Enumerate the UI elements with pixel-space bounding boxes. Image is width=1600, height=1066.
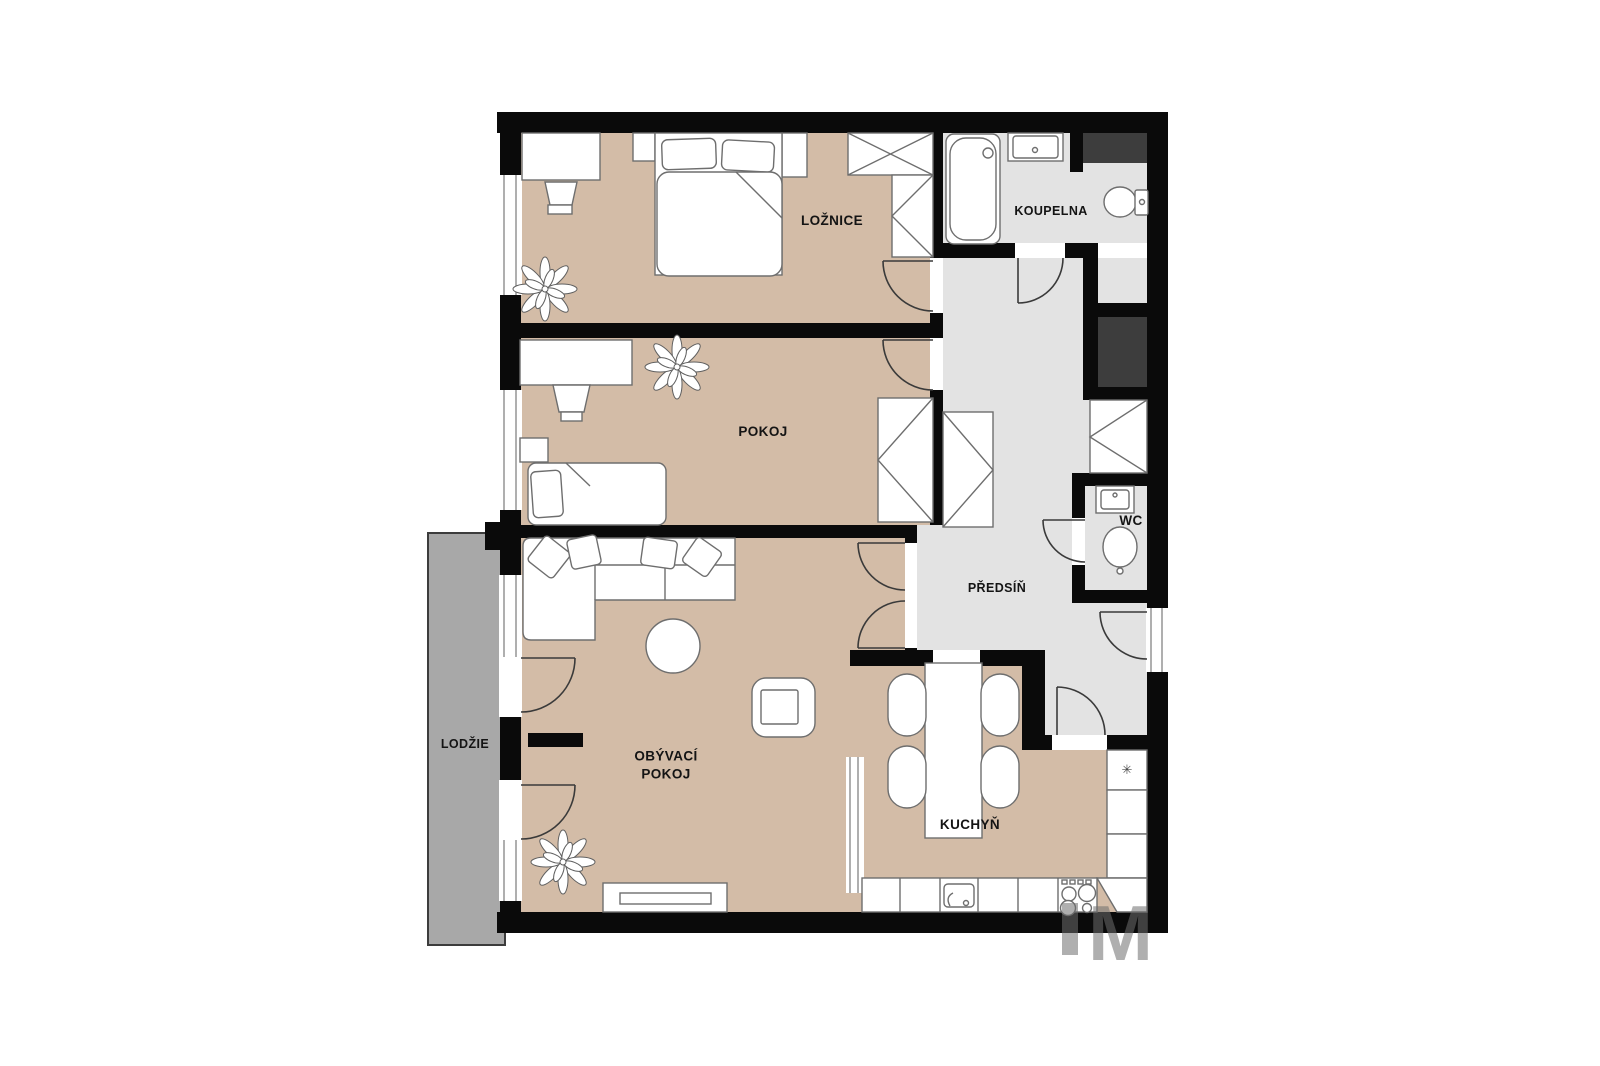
bed-pillow-left <box>661 138 716 170</box>
wc-toilet-button <box>1117 568 1123 574</box>
watermark: M <box>1088 894 1151 972</box>
bedroom-desk <box>522 133 600 180</box>
wc-toilet-bowl <box>1103 527 1137 567</box>
label-loznice: LOŽNICE <box>801 212 863 230</box>
pokoj-desk <box>520 340 632 385</box>
wall-below-shaft <box>1083 387 1147 400</box>
hallway-closet <box>1090 400 1147 473</box>
dining-chair-2 <box>888 746 926 808</box>
label-lodzie: LODŽIE <box>441 736 489 752</box>
wall-right <box>1147 133 1168 933</box>
balcony-door-1-opening <box>499 657 522 717</box>
shaft-top <box>1083 133 1147 163</box>
wall-living-stub <box>528 733 583 747</box>
label-wc: WC <box>1119 512 1142 530</box>
bathroom-sink-drain <box>1033 148 1038 153</box>
pokoj-wardrobe <box>878 398 933 522</box>
hallway-wardrobe <box>943 412 993 527</box>
wall-hallway-right <box>1083 243 1098 400</box>
bathroom-door-opening <box>1015 243 1065 258</box>
bathroom-toilet-bowl <box>1104 187 1136 217</box>
bathroom-nook-floor <box>1098 258 1147 303</box>
label-predsin: PŘEDSÍŇ <box>968 580 1026 596</box>
bathtub-drain <box>983 148 993 158</box>
sofa-pillow-3 <box>640 537 678 569</box>
dining-chair-1 <box>888 674 926 736</box>
label-koupelna: KOUPELNA <box>1014 203 1087 219</box>
wall-kitchen-hallway <box>1022 650 1045 750</box>
bedroom-plant <box>513 257 577 321</box>
wc-door-opening <box>1072 518 1085 565</box>
bedroom-window <box>499 175 522 295</box>
wall-wc-bottom <box>1072 590 1147 603</box>
pokoj-window <box>499 390 522 510</box>
living-double-door-opening <box>905 543 917 648</box>
pokoj-chair <box>553 385 590 412</box>
counter-right-cell-2 <box>1107 834 1147 878</box>
single-bed-pillow <box>530 470 563 518</box>
pokoj-chair-base <box>561 412 582 421</box>
tv-screen <box>620 893 711 904</box>
armchair-cushion <box>761 690 798 724</box>
hallway-floor-lower <box>1045 650 1147 735</box>
wc-sink-drain <box>1113 493 1117 497</box>
pokoj-door-opening <box>930 338 943 390</box>
dining-chair-4 <box>981 746 1019 808</box>
wall-bedroom-pokoj <box>500 323 943 338</box>
wall-wc-top <box>1072 473 1147 486</box>
bedroom-door-opening <box>930 258 943 313</box>
bedroom-chair <box>545 182 577 205</box>
label-pokoj: POKOJ <box>738 423 787 441</box>
living-window-2 <box>499 840 522 901</box>
label-kuchyn: KUCHYŇ <box>940 816 1000 834</box>
wall-loggia-junction <box>485 522 521 550</box>
kitchen-sink-drain <box>964 901 969 906</box>
kitchen-pass-through <box>846 757 864 893</box>
counter-right-cell-1 <box>1107 790 1147 834</box>
dining-table <box>925 663 982 838</box>
fridge-snowflake-icon: ✳ <box>1122 762 1133 778</box>
wall-pokoj-living <box>500 525 917 538</box>
dining-chair-3 <box>981 674 1019 736</box>
wall-bathroom-bottom <box>930 243 1098 258</box>
floor-plan: LOŽNICE POKOJ OBÝVACÍ POKOJ KUCHYŇ PŘEDS… <box>0 0 1600 1066</box>
bed-pillow-right <box>721 140 774 173</box>
sofa-pillow-2 <box>566 534 602 570</box>
hallway-floor-entry <box>1083 603 1147 650</box>
shaft-middle <box>1097 317 1147 387</box>
floor-plan-drawing <box>0 0 1600 1066</box>
watermark-bar <box>1062 903 1078 955</box>
balcony-door-2-opening <box>499 780 522 840</box>
bedroom-nightstand-left <box>633 133 655 161</box>
coffee-table <box>646 619 700 673</box>
bed-blanket <box>657 172 782 276</box>
living-room-plant <box>531 830 595 894</box>
bedroom-wardrobe-side <box>892 175 933 257</box>
wall-nook-bottom <box>1098 303 1147 317</box>
pokoj-plant <box>645 335 709 399</box>
label-obyvaci-pokoj: OBÝVACÍ POKOJ <box>610 747 722 782</box>
bathroom-toilet-button <box>1140 200 1145 205</box>
pokoj-nightstand <box>520 438 548 462</box>
living-window-1 <box>499 575 522 657</box>
bedroom-nightstand-right <box>782 133 807 177</box>
hall-kitchen-door-opening <box>1052 735 1107 750</box>
bedroom-chair-base <box>548 205 572 214</box>
burner-1 <box>1062 887 1076 901</box>
wall-shaft-stub <box>1070 133 1083 172</box>
wall-top <box>497 112 1168 133</box>
entrance-door-opening <box>1146 608 1169 672</box>
